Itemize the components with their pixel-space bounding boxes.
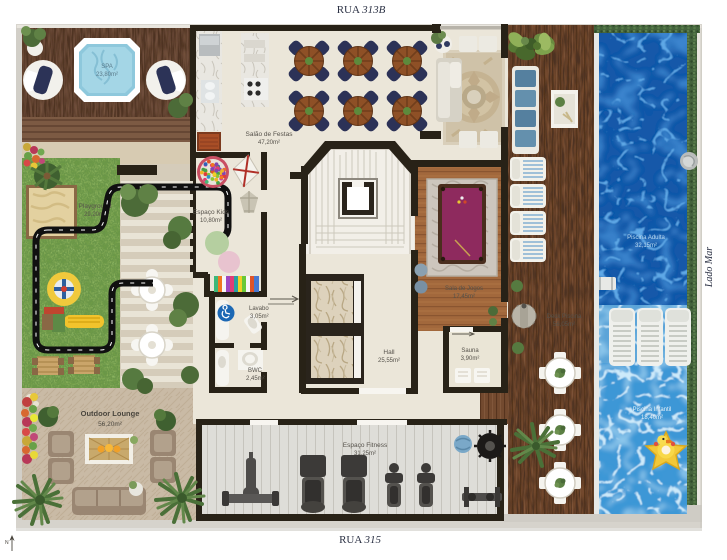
svg-text:Piscina Adulta: Piscina Adulta [627,235,665,241]
svg-text:Sauna: Sauna [461,348,479,354]
svg-text:23,80m²: 23,80m² [96,72,118,78]
svg-text:Sala de Jogos: Sala de Jogos [445,286,483,292]
svg-text:3,90m²: 3,90m² [461,356,480,362]
svg-text:BWC: BWC [248,368,263,374]
svg-text:Espaço Kids: Espaço Kids [193,209,230,216]
svg-text:Salão de Festas: Salão de Festas [246,131,294,138]
svg-text:Outdoor Lounge: Outdoor Lounge [81,409,140,418]
svg-text:Lavabo: Lavabo [249,306,269,312]
svg-text:N: N [5,540,9,546]
svg-text:56,20m²: 56,20m² [98,421,123,428]
svg-text:56,05m²: 56,05m² [553,322,575,328]
svg-text:3,05m²: 3,05m² [250,314,269,320]
svg-text:Deck Piscina: Deck Piscina [547,314,582,320]
svg-text:18,40m²: 18,40m² [641,415,663,421]
svg-text:32,15m²: 32,15m² [635,243,657,249]
svg-text:31,25m²: 31,25m² [354,451,376,457]
svg-text:RUA 313B: RUA 313B [337,4,386,16]
svg-text:2,45m²: 2,45m² [246,376,265,382]
svg-text:Lado Mar: Lado Mar [704,247,715,288]
svg-text:47,20m²: 47,20m² [258,140,280,146]
svg-text:17,45m²: 17,45m² [453,294,475,300]
svg-text:SPA: SPA [101,64,113,70]
svg-text:10,80m²: 10,80m² [200,218,222,224]
svg-text:25,55m²: 25,55m² [378,358,400,364]
svg-text:RUA 315: RUA 315 [339,534,381,546]
svg-text:Hall: Hall [383,349,395,356]
svg-text:Piscina Infantil: Piscina Infantil [633,407,672,413]
svg-text:Espaço Fitness: Espaço Fitness [343,442,388,449]
